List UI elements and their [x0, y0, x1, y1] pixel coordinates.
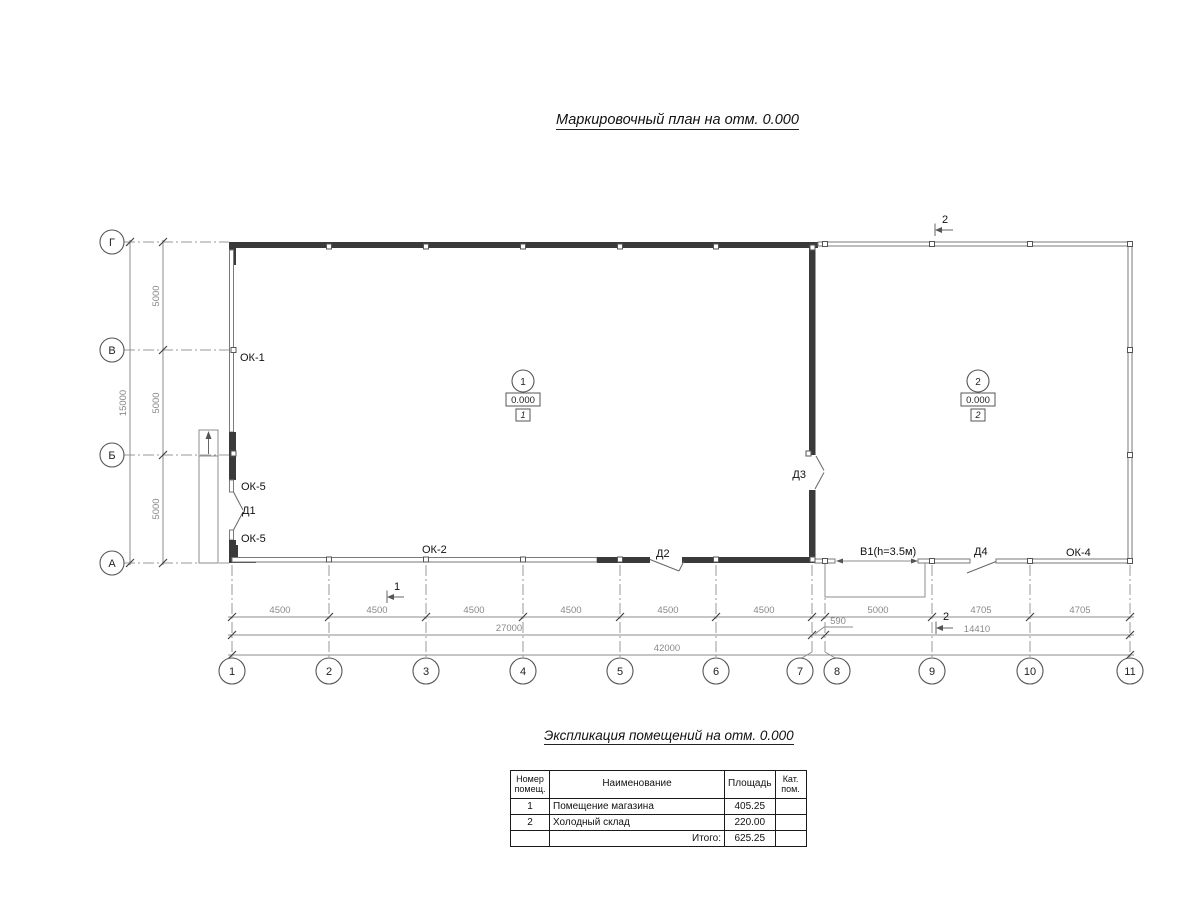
section-mark-label: 2 — [943, 611, 949, 623]
column-marker — [714, 557, 719, 562]
gate-v1-arrow-icon — [911, 559, 918, 564]
header-category: Кат. пом. — [775, 771, 806, 799]
dim-value: 4500 — [753, 605, 774, 616]
axis-label: В — [108, 345, 115, 357]
header-line: помещ. — [515, 784, 546, 794]
cell-room-number: 1 — [511, 799, 550, 815]
room-schedule-title: Экспликация помещений на отм. 0.000 — [544, 728, 794, 745]
cell-room-name: Помещение магазина — [550, 799, 725, 815]
axis-label: 1 — [229, 666, 235, 678]
dim-value: 27000 — [496, 623, 522, 634]
column-marker — [1128, 559, 1133, 564]
dim-value: 4705 — [1069, 605, 1090, 616]
room-zone: 2 — [974, 410, 980, 420]
window-label-ok1: ОК-1 — [240, 352, 265, 364]
door-label-d4: Д4 — [974, 546, 988, 558]
door-d2-leaf — [679, 561, 684, 571]
axis-label: 6 — [713, 666, 719, 678]
cell-room-number: 2 — [511, 815, 550, 831]
column-marker — [810, 557, 815, 562]
section-arrow-icon — [387, 594, 394, 600]
column-marker — [521, 244, 526, 249]
window-ok5-upper — [230, 480, 234, 492]
wall-top — [818, 242, 1132, 246]
wall-segment — [918, 559, 970, 563]
plan-title: Маркировочный план на отм. 0.000 — [556, 112, 799, 130]
room-zone: 1 — [520, 410, 525, 420]
section-mark-label: 2 — [942, 214, 948, 226]
dim-value: 15000 — [118, 390, 129, 416]
axis-label: 7 — [797, 666, 803, 678]
axis-label: 2 — [326, 666, 332, 678]
column-marker — [327, 557, 332, 562]
dim-value: 5000 — [151, 285, 162, 306]
loading-dock — [825, 563, 925, 597]
axis-label: Б — [108, 450, 115, 462]
dim-value: 5000 — [151, 392, 162, 413]
cell-total-label: Итого: — [550, 831, 725, 847]
dimension-texts: 15000 5000 5000 5000 4500 4500 4500 4500… — [118, 285, 1091, 654]
dim-value: 5000 — [151, 498, 162, 519]
header-area: Площадь — [725, 771, 776, 799]
dim-value: 4500 — [560, 605, 581, 616]
table-row: 1 Помещение магазина 405.25 — [511, 799, 807, 815]
door-label-d2: Д2 — [656, 548, 670, 560]
column-marker — [930, 559, 935, 564]
room-elevation: 0.000 — [511, 395, 535, 406]
opening-labels: ОК-1 ОК-5 Д1 ОК-5 ОК-2 Д2 Д3 В1(h=3.5м) … — [240, 352, 1091, 560]
column-marker — [1128, 242, 1133, 247]
window-label-ok4: ОК-4 — [1066, 547, 1091, 559]
column-marker — [806, 451, 811, 456]
cell-room-name: Холодный склад — [550, 815, 725, 831]
dim-value: 4500 — [366, 605, 387, 616]
room-tag-2: 2 0.000 2 — [961, 370, 995, 421]
column-marker — [1028, 242, 1033, 247]
axis-label: 10 — [1024, 666, 1036, 678]
cell-total-area: 625.25 — [725, 831, 776, 847]
column-marker — [424, 244, 429, 249]
door-label-d1: Д1 — [242, 505, 256, 517]
axis-label: 9 — [929, 666, 935, 678]
section-arrow-icon — [936, 625, 943, 631]
section-marks: 2 1 2 — [387, 214, 953, 634]
wall-segment — [682, 557, 815, 563]
entrance-stair — [199, 430, 218, 563]
floor-plan-drawing: 15000 5000 5000 5000 4500 4500 4500 4500… — [0, 0, 1200, 900]
gate-v1-arrow-icon — [836, 559, 843, 564]
column-marker — [714, 244, 719, 249]
column-marker — [930, 242, 935, 247]
table-total-row: Итого: 625.25 — [511, 831, 807, 847]
axis-label: Г — [109, 237, 115, 249]
wall-axis7-lower — [809, 490, 816, 557]
cell-room-area: 220.00 — [725, 815, 776, 831]
cell-room-category — [775, 815, 806, 831]
dim-value: 4500 — [657, 605, 678, 616]
column-marker — [231, 348, 236, 353]
wall-segment — [597, 557, 650, 563]
header-name: Наименование — [550, 771, 725, 799]
door-d2-leaf — [650, 560, 679, 572]
cell-empty — [775, 831, 806, 847]
column-marker — [1028, 559, 1033, 564]
dim-leader — [815, 627, 824, 634]
grid-lines — [124, 242, 1130, 659]
cell-room-area: 405.25 — [725, 799, 776, 815]
column-marker — [618, 557, 623, 562]
dim-value-590: 590 — [830, 616, 846, 627]
door-d3-leaf — [816, 456, 824, 471]
column-marker — [231, 451, 236, 456]
column-marker — [823, 242, 828, 247]
dim-value: 42000 — [654, 643, 680, 654]
gate-label-v1: В1(h=3.5м) — [860, 546, 916, 558]
door-d4-leaf — [967, 562, 996, 574]
dim-value: 4500 — [463, 605, 484, 616]
window-ok5-lower — [230, 530, 234, 540]
column-marker — [521, 557, 526, 562]
axis-label: А — [108, 558, 116, 570]
room-elevation: 0.000 — [966, 395, 990, 406]
axis-label: 4 — [520, 666, 526, 678]
dimension-ticks — [126, 238, 1134, 659]
dim-value: 5000 — [867, 605, 888, 616]
column-marker — [1128, 348, 1133, 353]
room-schedule-table: Номер помещ. Наименование Площадь Кат. п… — [510, 770, 807, 847]
stair-arrow-head-icon — [206, 431, 212, 439]
axis-label: 5 — [617, 666, 623, 678]
header-room-number: Номер помещ. — [511, 771, 550, 799]
wall-right — [1128, 242, 1132, 563]
dim-value: 4705 — [970, 605, 991, 616]
column-marker — [1128, 453, 1133, 458]
column-marker — [327, 244, 332, 249]
axis-label: 8 — [834, 666, 840, 678]
dock-outline — [825, 563, 925, 597]
room-number: 2 — [975, 377, 981, 388]
column-marker — [618, 244, 623, 249]
cell-empty — [511, 831, 550, 847]
axis-label: 11 — [1124, 666, 1135, 678]
dim-value: 4500 — [269, 605, 290, 616]
table-header-row: Номер помещ. Наименование Площадь Кат. п… — [511, 771, 807, 799]
drawing-sheet: Маркировочный план на отм. 0.000 Эксплик… — [0, 0, 1200, 900]
column-markers — [231, 242, 1133, 564]
cell-room-category — [775, 799, 806, 815]
window-strip-ok1 — [230, 250, 234, 432]
window-label-ok5-upper: ОК-5 — [241, 481, 266, 493]
column-marker — [424, 557, 429, 562]
door-d3-leaf — [815, 473, 824, 490]
dim-value: 14410 — [964, 624, 990, 635]
section-arrow-icon — [935, 227, 942, 233]
table-row: 2 Холодный склад 220.00 — [511, 815, 807, 831]
header-line: пом. — [781, 784, 800, 794]
window-label-ok5-lower: ОК-5 — [241, 533, 266, 545]
dimension-lines — [130, 240, 1134, 655]
door-label-d3: Д3 — [792, 469, 806, 481]
room-tag-1: 1 0.000 1 — [506, 370, 540, 421]
wall-segment-ok4 — [996, 559, 1132, 563]
section-mark-label: 1 — [394, 581, 400, 593]
column-marker — [810, 245, 815, 250]
wall-axis7-upper — [809, 242, 816, 455]
column-marker — [823, 559, 828, 564]
room-number: 1 — [520, 377, 526, 388]
axis-label: 3 — [423, 666, 429, 678]
window-strip-ok2 — [232, 558, 597, 563]
window-label-ok2: ОК-2 — [422, 544, 447, 556]
